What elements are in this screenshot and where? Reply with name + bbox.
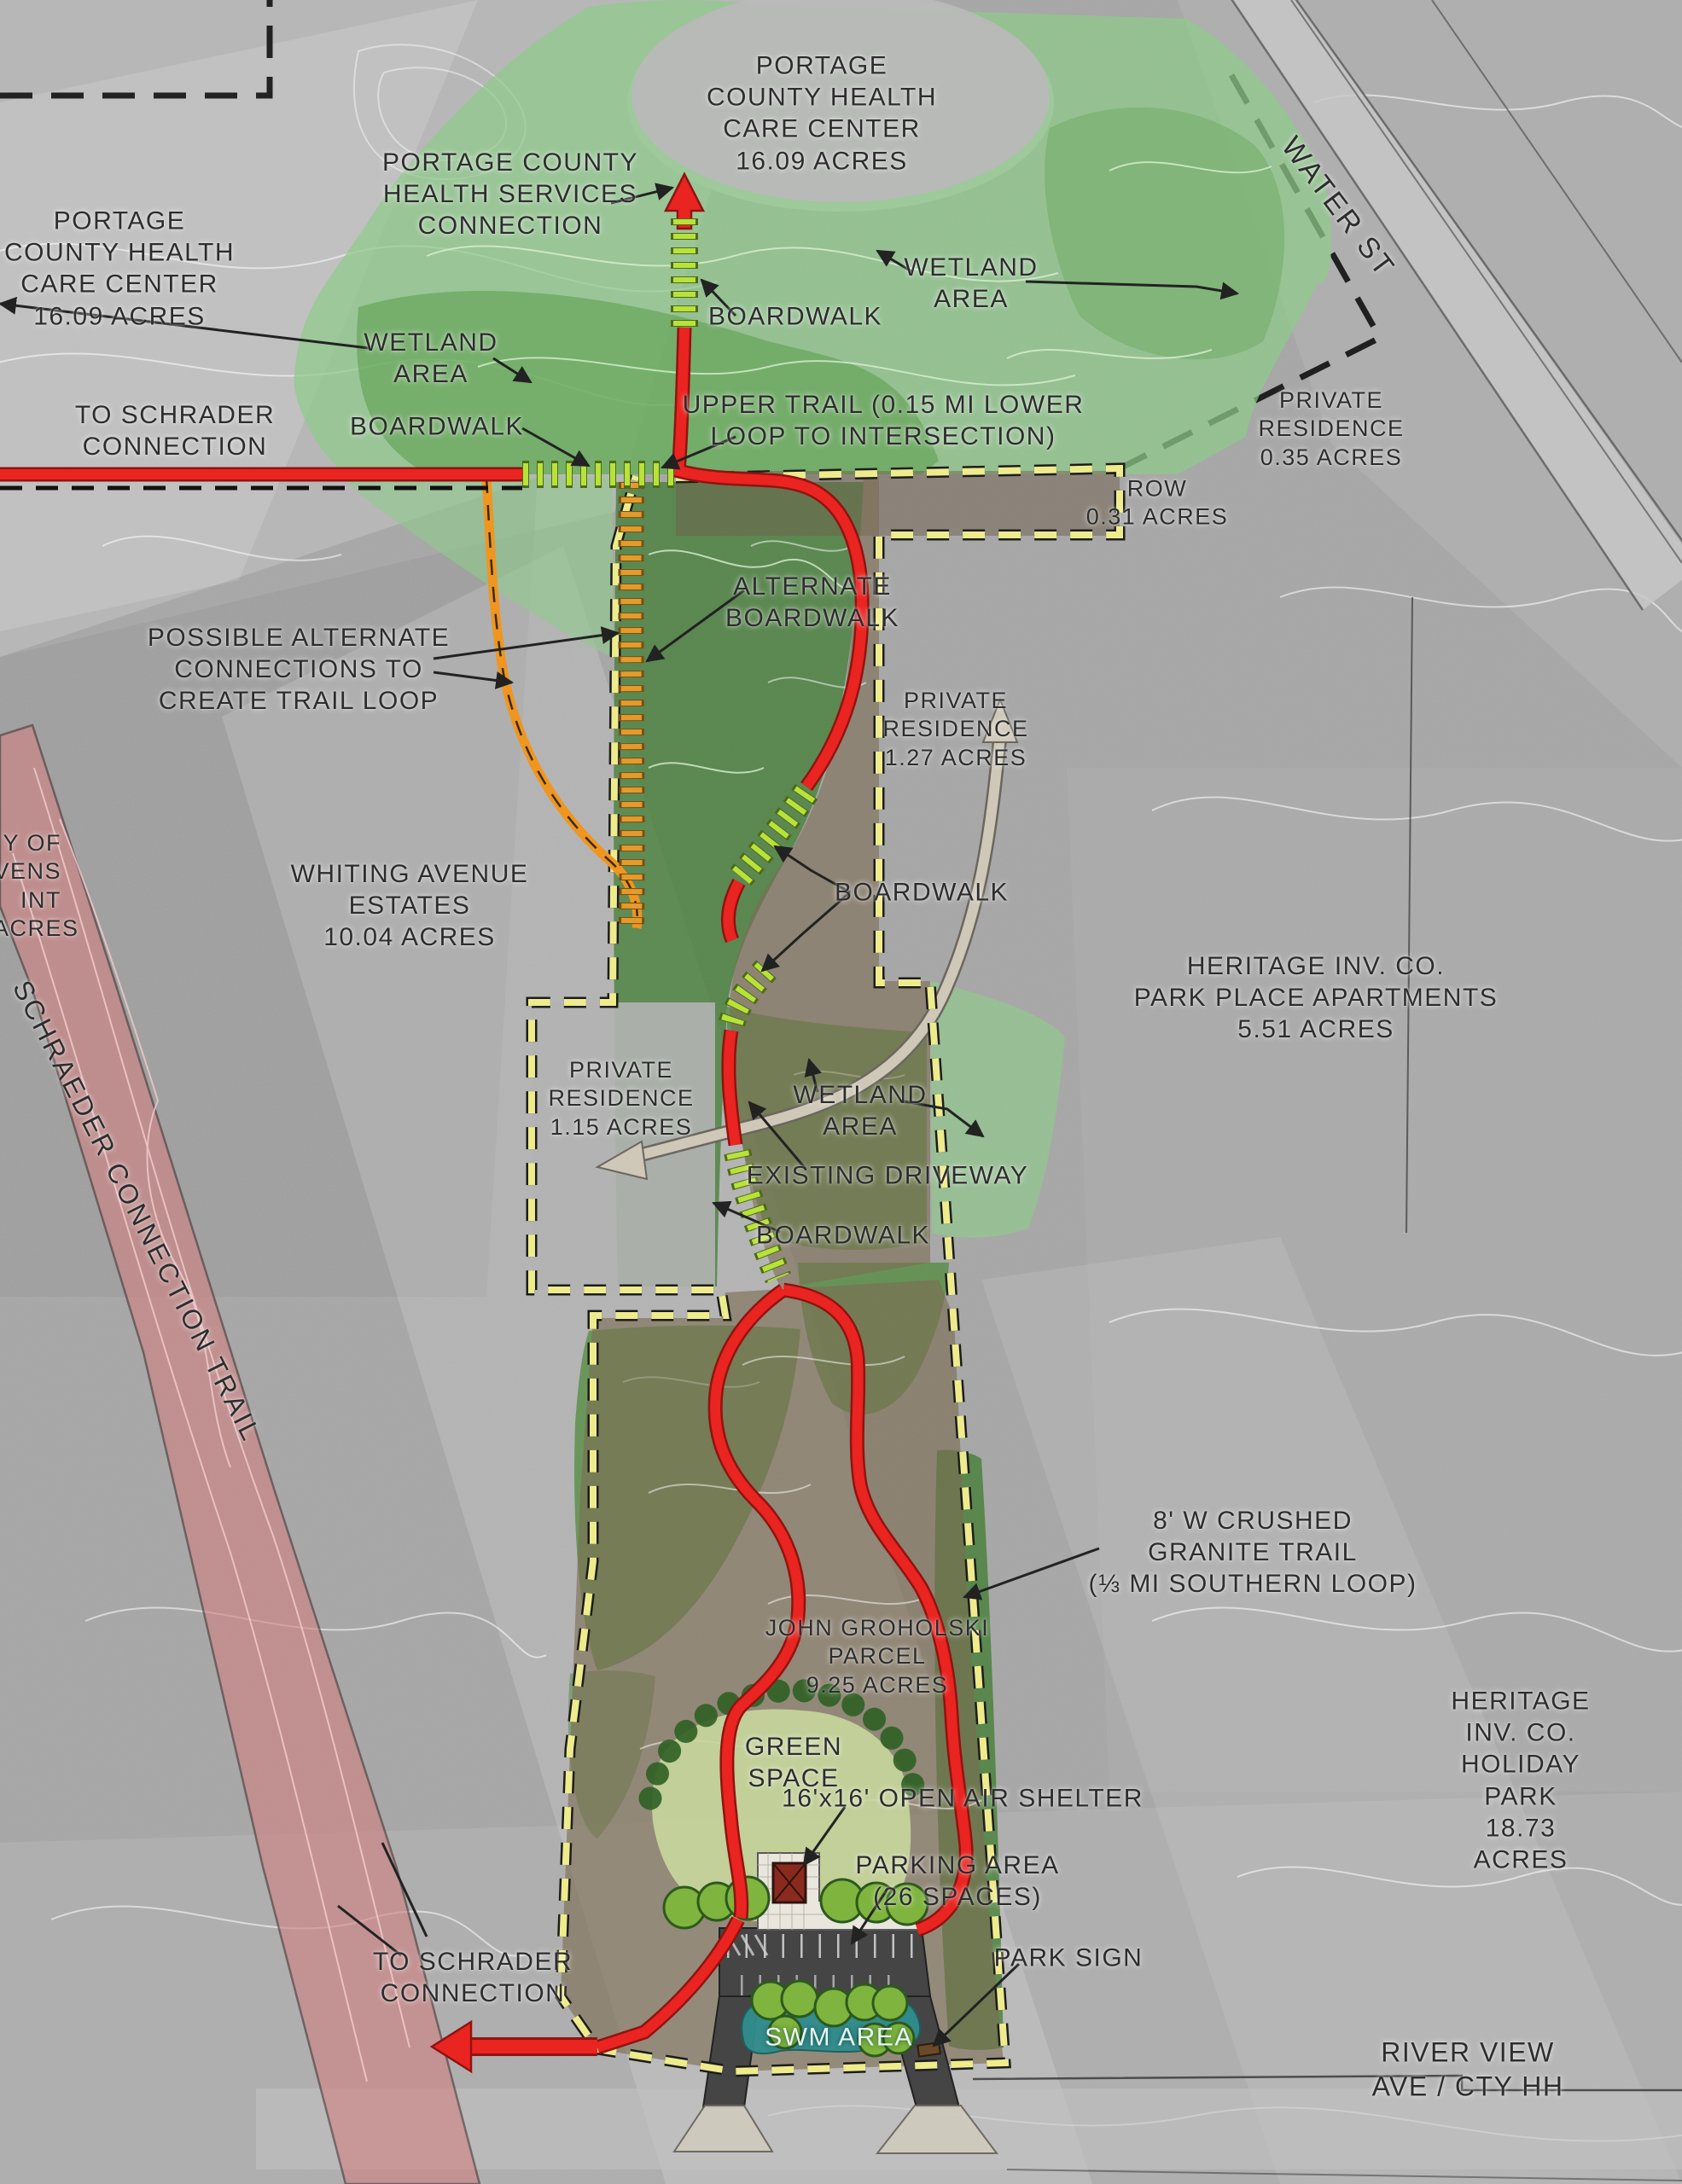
park-sign	[917, 2042, 940, 2056]
label-row: ROW 0.31 ACRES	[1086, 475, 1229, 532]
label-existing-driveway: EXISTING DRIVEWAY	[747, 1159, 1029, 1191]
label-city-cutoff: Y OF VENS INT ACRES	[0, 829, 61, 944]
label-possible-alternate: POSSIBLE ALTERNATE CONNECTIONS TO CREATE…	[148, 622, 450, 717]
label-pchs-connection: PORTAGE COUNTY HEALTH SERVICES CONNECTIO…	[382, 147, 638, 242]
label-river-view: RIVER VIEW AVE / CTY HH	[1361, 2036, 1575, 2103]
label-boardwalk-top: BOARDWALK	[708, 300, 882, 332]
label-boardwalk-lower: BOARDWALK	[756, 1219, 930, 1251]
label-wetland-upper-left: WETLAND AREA	[364, 327, 498, 390]
label-park-sign: PARK SIGN	[994, 1942, 1144, 1973]
label-private-115: PRIVATE RESIDENCE 1.15 ACRES	[548, 1056, 694, 1141]
label-private-035: PRIVATE RESIDENCE 0.35 ACRES	[1258, 386, 1404, 472]
site-plan-map: PORTAGE COUNTY HEALTH CARE CENTER 16.09 …	[0, 0, 1682, 2184]
label-heritage-holiday: HERITAGE INV. CO. HOLIDAY PARK 18.73 ACR…	[1440, 1685, 1602, 1875]
label-whiting: WHITING AVENUE ESTATES 10.04 ACRES	[291, 858, 529, 954]
label-groholski: JOHN GROHOLSKI PARCEL 9.25 ACRES	[765, 1614, 990, 1699]
label-shelter: 16'x16' OPEN AIR SHELTER	[782, 1782, 1144, 1814]
label-alternate-boardwalk: ALTERNATE BOARDWALK	[725, 571, 899, 634]
label-private-127: PRIVATE RESIDENCE 1.27 ACRES	[882, 687, 1028, 772]
label-heritage-park-place: HERITAGE INV. CO. PARK PLACE APARTMENTS …	[1134, 950, 1499, 1046]
label-to-schrader-bottom: TO SCHRADER CONNECTION	[373, 1946, 573, 2009]
label-to-schrader-top: TO SCHRADER CONNECTION	[75, 399, 275, 462]
label-wetland-mid: WETLAND AREA	[793, 1079, 927, 1142]
label-boardwalk-upper-left: BOARDWALK	[350, 410, 524, 442]
label-upper-trail: UPPER TRAIL (0.15 MI LOWER LOOP TO INTER…	[683, 389, 1085, 452]
label-pchcc-left: PORTAGE COUNTY HEALTH CARE CENTER 16.09 …	[4, 206, 235, 333]
label-swm-area: SWM AREA	[765, 2021, 913, 2053]
label-wetland-top-right: WETLAND AREA	[904, 252, 1038, 315]
label-boardwalk-mid: BOARDWALK	[835, 876, 1009, 908]
label-pchcc-top: PORTAGE COUNTY HEALTH CARE CENTER 16.09 …	[707, 50, 937, 177]
label-parking: PARKING AREA (26 SPACES)	[855, 1850, 1059, 1913]
label-granite-trail: 8' W CRUSHED GRANITE TRAIL (⅓ MI SOUTHER…	[1088, 1505, 1417, 1600]
